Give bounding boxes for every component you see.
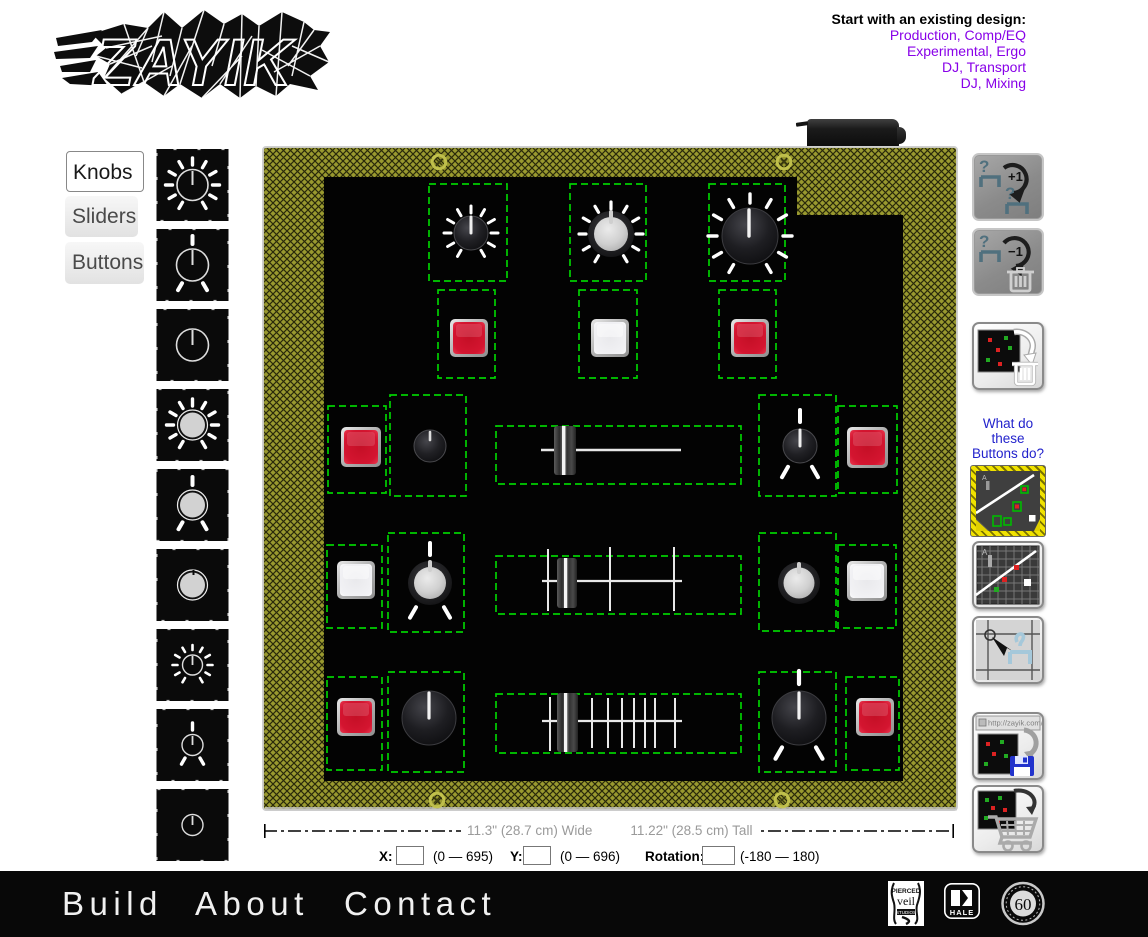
svg-text:STUDIOS: STUDIOS — [896, 910, 916, 915]
svg-text:?: ? — [979, 157, 989, 176]
svg-text:HALE: HALE — [950, 908, 974, 917]
svg-text:A: A — [982, 548, 988, 557]
svg-text:+1: +1 — [1008, 169, 1023, 184]
svg-text:?: ? — [979, 232, 989, 251]
svg-text:UNC CHESED: UNC CHESED — [949, 919, 976, 924]
svg-text:veil: veil — [897, 894, 916, 908]
svg-text:−1: −1 — [1008, 244, 1023, 259]
svg-text:http://zayik.com/: http://zayik.com/ — [988, 719, 1042, 728]
svg-text:A: A — [982, 475, 987, 482]
svg-text:60: 60 — [1015, 895, 1032, 914]
